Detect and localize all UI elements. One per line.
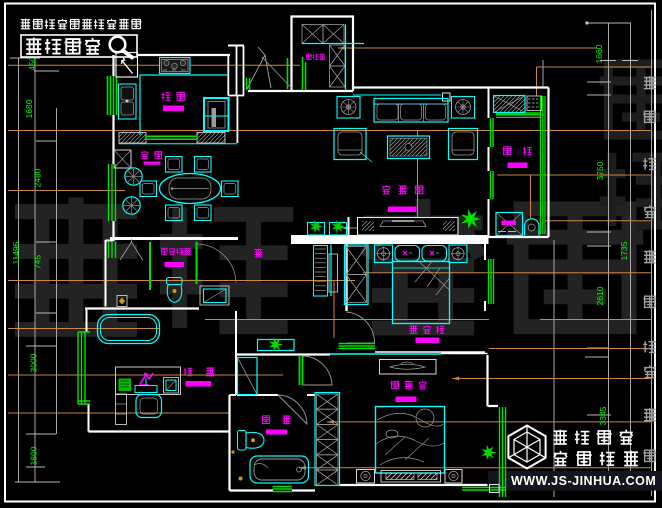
svg-text:1680: 1680	[24, 99, 34, 118]
svg-text:3345: 3345	[598, 406, 608, 425]
svg-text:2480: 2480	[33, 168, 43, 187]
svg-text:11495: 11495	[11, 241, 21, 264]
svg-text:2610: 2610	[595, 286, 605, 305]
svg-text:3000: 3000	[29, 353, 39, 372]
svg-text:1735: 1735	[619, 241, 629, 260]
svg-text:450: 450	[27, 56, 37, 70]
svg-text:745: 745	[33, 255, 43, 269]
svg-text:WWW.JS-JINHUA.COM: WWW.JS-JINHUA.COM	[511, 474, 656, 488]
svg-text:3750: 3750	[595, 161, 605, 180]
svg-text:1800: 1800	[29, 446, 39, 465]
svg-text:1660: 1660	[594, 44, 604, 63]
